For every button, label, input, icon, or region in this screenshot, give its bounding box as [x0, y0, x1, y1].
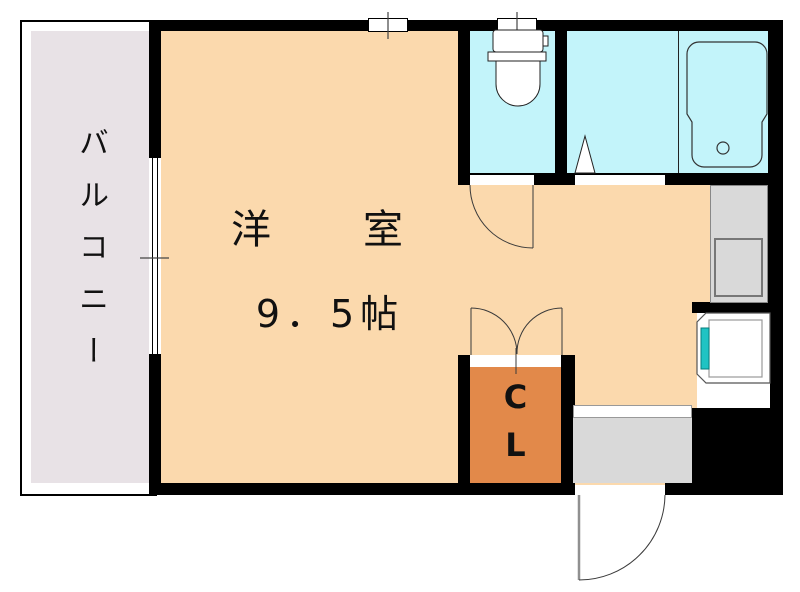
- closet-label-l: L: [505, 429, 525, 461]
- toilet-door-opening: [470, 175, 534, 185]
- balcony-area: バルコニー: [31, 31, 149, 483]
- window-pane-line: [152, 158, 153, 354]
- entrance-wall-block: [692, 408, 783, 495]
- balcony-window: [149, 158, 161, 354]
- washroom-sliding-door: [575, 175, 665, 185]
- wall-toilet-left: [458, 31, 470, 173]
- floor-plan: バルコニー C L 洋 室 9．5帖: [0, 0, 800, 592]
- kitchen-stove: [714, 238, 763, 297]
- closet-label-c: C: [504, 381, 527, 413]
- closet-area: C L: [470, 367, 561, 483]
- kitchen-sink-unit-bg: [697, 313, 770, 408]
- wall-left-lower: [149, 354, 161, 483]
- top-window-toilet: [497, 18, 537, 32]
- balcony-label: バルコニー: [75, 127, 105, 387]
- entrance-step: [573, 405, 692, 418]
- entrance-genkan: [573, 418, 692, 483]
- washroom-floor: [567, 31, 679, 173]
- wall-kitchen-stub: [692, 302, 768, 313]
- wall-top: [149, 20, 783, 31]
- closet-wall-left: [458, 355, 470, 483]
- main-room-label: 洋 室: [170, 197, 490, 255]
- window-pane-line: [157, 158, 158, 354]
- wall-bottom-left: [149, 483, 573, 495]
- wall-toilet-right: [555, 31, 567, 173]
- wall-left-upper: [149, 31, 161, 158]
- entry-door-swing: [579, 495, 665, 580]
- bathroom-floor: [679, 31, 768, 173]
- top-window-main-room: [368, 18, 408, 32]
- closet-door-opening: [470, 355, 561, 367]
- main-room-size: 9．5帖: [170, 283, 490, 338]
- toilet-room-floor: [470, 31, 555, 173]
- entry-door-opening: [575, 485, 665, 495]
